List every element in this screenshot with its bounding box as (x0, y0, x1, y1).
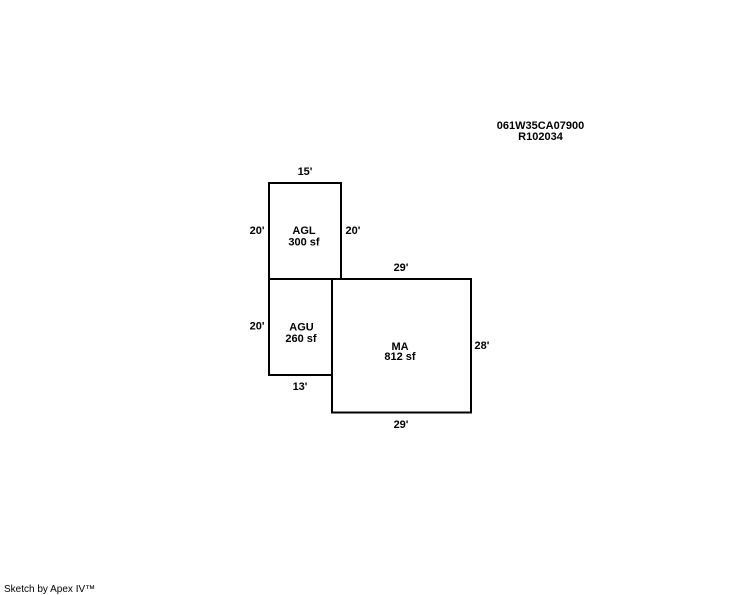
svg-text:28': 28' (475, 340, 490, 352)
svg-text:AGU: AGU (289, 322, 314, 334)
svg-text:300 sf: 300 sf (288, 237, 320, 249)
svg-text:Sketch by Apex IV™: Sketch by Apex IV™ (4, 584, 95, 595)
svg-text:15': 15' (298, 166, 313, 178)
svg-text:260 sf: 260 sf (285, 333, 317, 345)
svg-text:20': 20' (250, 321, 265, 333)
svg-text:20': 20' (250, 225, 265, 237)
svg-text:812 sf: 812 sf (384, 351, 416, 363)
svg-text:AGL: AGL (292, 225, 316, 237)
svg-text:29': 29' (394, 419, 409, 431)
svg-text:13': 13' (293, 381, 308, 393)
svg-text:20': 20' (346, 225, 361, 237)
svg-text:R102034: R102034 (518, 131, 564, 143)
svg-text:29': 29' (394, 262, 409, 274)
